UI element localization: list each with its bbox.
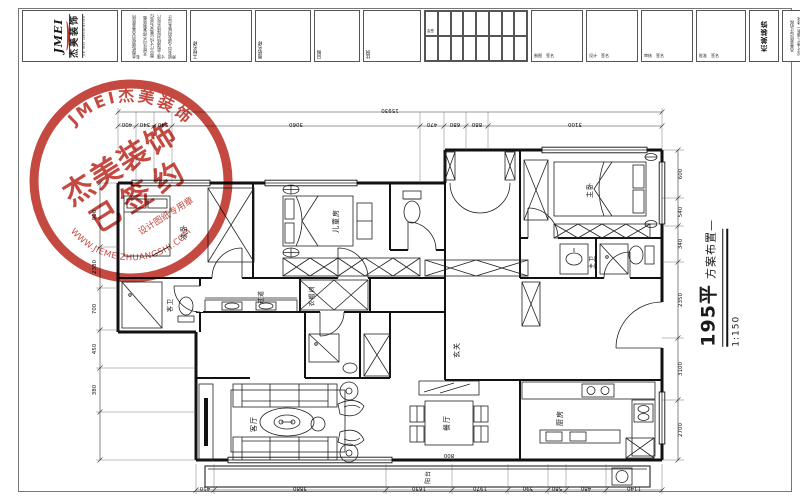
dim-label: 480 [580,485,591,491]
company-stamp: JMEI杰美装饰 WWW.JIEMEIZHUANGSHI.COM 杰美装饰 已签… [24,74,238,288]
sign-label: 会签 [427,29,434,34]
date-label: 日期 [317,50,323,59]
scale-label: 比例 [366,50,372,59]
drawing-name-label: 图纸名称 [258,41,264,59]
dining-furniture [410,381,488,445]
guest-bath-fixtures [122,282,297,328]
drawing-name-cell: 图纸名称 [255,10,311,62]
dim-label: 380 [92,384,98,395]
dim-label: 3060 [289,121,303,127]
title-block: JMEI 杰美装饰 JIE MEI Decoration 本图纸版权归杰美装饰所… [22,10,800,62]
company-name-en: JIE MEI Decoration [83,14,87,58]
room-label-entry: 玄关 [452,342,461,358]
plan-name: 方案布置— [704,219,717,279]
staff-label: 审核 [644,53,652,59]
brand-cell: 杰美装饰 [749,10,779,62]
room-label-balcony: 阳台 [424,470,432,484]
room-label-guest-bath: 客卫 [166,298,174,312]
staff-label: 设计 [589,53,597,59]
dim-label: 680 [449,121,460,127]
area-label: 195平 [697,284,719,347]
date-cell: 日期 [314,10,360,62]
scale-cell: 比例 [363,10,421,62]
room-label-cloak: 衣帽间 [308,285,316,306]
staff-cell-approver: 批准签名 [696,10,746,62]
room-label-dining: 餐厅 [442,415,451,431]
room-label-master-bath: 主卫 [588,255,596,269]
dim-top-total: 15930 [381,107,399,113]
note-line: 施工前请核对现场实际尺寸 [157,13,165,59]
contact-line: 杰美装饰设计机构 [790,20,794,52]
note-line: 图中尺寸均以毫米为单位 [150,14,154,58]
wc-fixtures [403,191,421,223]
dim-label: 3100 [568,121,582,127]
wall-hatches [445,152,515,180]
title-underline [722,229,728,347]
staff-cell-draftsman: 制图签名 [531,10,583,62]
dim-label: 800 [443,452,454,458]
dim-label: 470 [426,121,437,127]
company-name-cn: 杰美装饰 [69,14,83,58]
staff-cell-checker: 审核签名 [641,10,693,62]
room-label-kitchen: 厨房 [555,410,564,426]
note-line: 如有出入请及时联系设计师 [168,13,176,59]
project-name-cell: 工程名称 [190,10,252,62]
plan-title-block: 195平 方案布置— 1:150 [652,228,782,348]
staff-label: 制图 [534,53,542,59]
dim-label: 880 [471,121,482,127]
kitchen-furniture [522,382,655,458]
stamp-arc-bottom: WWW.JIEMEIZHUANGSHI.COM [68,227,194,263]
staff-extra: 签名 [546,53,554,59]
staff-extra: 签名 [656,53,664,59]
dim-label: 1630 [412,485,426,491]
project-name-label: 工程名称 [193,41,199,59]
dim-label: 1970 [473,485,487,491]
contact-cell: 杰美装饰设计机构 设计·施工·服务一体化 WWW.JIEMEIZHUANGSHI… [782,10,800,62]
staff-label: 批准 [699,53,707,59]
dim-label: 600 [678,168,684,179]
dim-label: 1140 [627,485,641,491]
room-label-master: 主卧 [585,182,594,198]
staff-extra: 签名 [601,53,609,59]
note-line: 本图纸版权归杰美装饰所有 [132,13,140,59]
dim-label: 2700 [678,423,684,437]
dim-label: 410 [199,485,210,491]
signature-grid: 会签 [424,10,528,62]
jmei-logo: JMEI [53,14,69,58]
staff-cell-designer: 设计签名 [586,10,638,62]
note-line: 未经许可不得复制转载 [143,16,147,56]
dim-label: 540 [678,206,684,217]
room-label-kids: 儿童房 [331,209,340,233]
dim-label: 390 [522,485,533,491]
dim-label: 580 [551,485,562,491]
dim-label: 3100 [678,362,684,376]
title-block-notes-cell: 本图纸版权归杰美装饰所有 未经许可不得复制转载 图中尺寸均以毫米为单位 施工前请… [121,10,187,62]
room-label-corridor: 过道 [257,290,265,304]
dim-label: 700 [92,303,98,314]
title-block-logo-cell: JMEI 杰美装饰 JIE MEI Decoration [22,10,118,62]
dim-label: 3880 [293,485,307,491]
foyer-furniture [522,282,540,326]
scale-value: 1:150 [731,229,741,347]
dim-label: 450 [92,343,98,354]
room-label-living: 客厅 [249,416,258,432]
brand-name: 杰美装饰 [759,20,769,52]
living-room-furniture [199,382,364,462]
staff-extra: 签名 [711,53,719,59]
